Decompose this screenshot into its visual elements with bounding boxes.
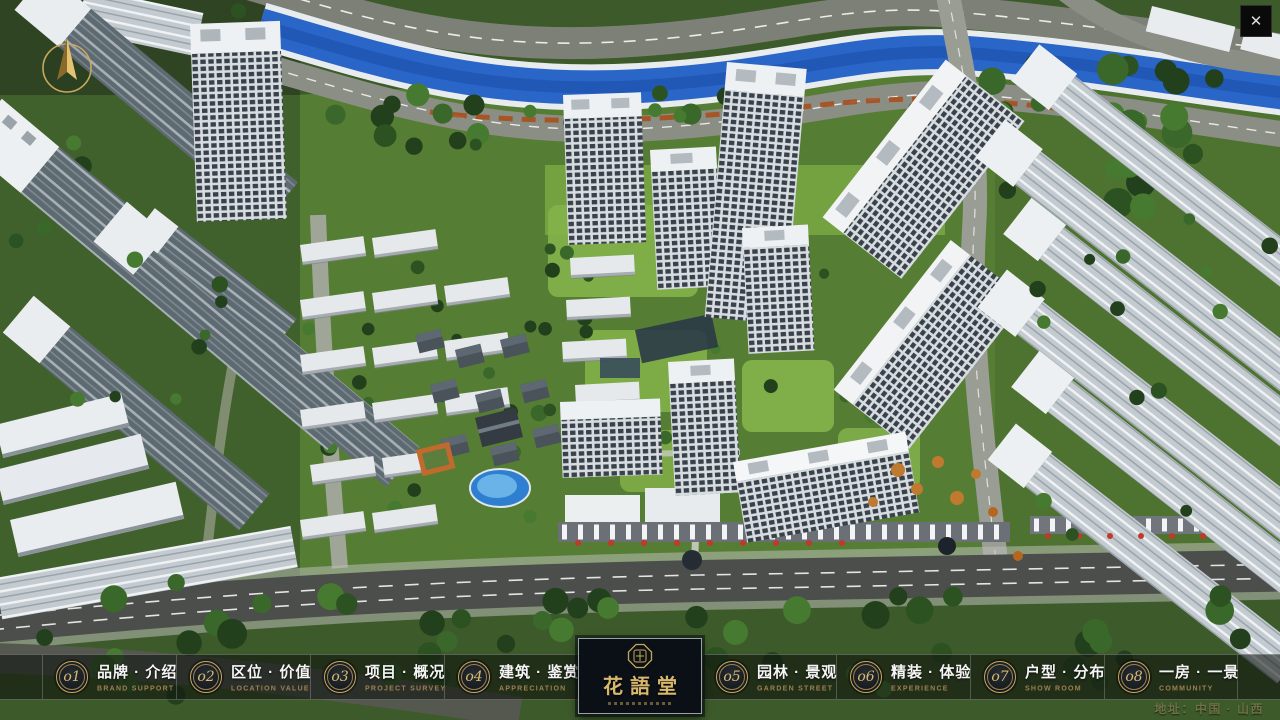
nav-item-unit-layouts[interactable]: o7 户型 · 分布 SHOW ROOM — [970, 655, 1104, 699]
nav-item-3-number: o3 — [331, 670, 348, 684]
project-logo-panel[interactable]: 花語堂 — [578, 638, 702, 714]
nav-item-location-value[interactable]: o2 区位 · 价值 LOCATION VALUE — [176, 655, 310, 699]
nav-item-7-label-en: SHOW ROOM — [1025, 684, 1087, 692]
nav-item-6-badge: o6 — [850, 661, 882, 693]
nav-item-6-number: o6 — [857, 670, 874, 684]
nav-item-4-label-zh: 建筑 · 鉴赏 — [499, 661, 578, 682]
sales-presentation-window: ✕ o1 品牌 · 介绍 BRAND SUPPORT o2 区位 · 价值 LO… — [0, 0, 1280, 720]
nav-item-project-survey[interactable]: o3 项目 · 概况 PROJECT SURVEY — [310, 655, 444, 699]
nav-item-1-label-en: BRAND SUPPORT — [97, 684, 159, 692]
nav-item-room-view[interactable]: o8 一房 · 一景 COMMUNITY — [1104, 655, 1238, 699]
nav-item-5-label-zh: 园林 · 景观 — [757, 661, 836, 682]
nav-item-5-badge: o5 — [716, 661, 748, 693]
nav-item-8-number: o8 — [1125, 670, 1142, 684]
project-logo-title: 花語堂 — [603, 670, 684, 699]
nav-item-8-badge: o8 — [1118, 661, 1150, 693]
nav-item-2-label-en: LOCATION VALUE — [231, 684, 293, 692]
nav-item-architecture[interactable]: o4 建筑 · 鉴赏 APPRECIATION — [444, 655, 578, 699]
nav-item-8-label-en: COMMUNITY — [1159, 684, 1220, 692]
nav-item-5-label-en: GARDEN STREET — [757, 684, 819, 692]
nav-item-2-badge: o2 — [190, 661, 222, 693]
close-button[interactable]: ✕ — [1240, 5, 1272, 37]
nav-item-2-number: o2 — [197, 670, 214, 684]
nav-item-2-label-zh: 区位 · 价值 — [231, 661, 310, 682]
nav-item-1-number: o1 — [63, 670, 80, 684]
nav-item-brand-intro[interactable]: o1 品牌 · 介绍 BRAND SUPPORT — [42, 655, 176, 699]
close-icon: ✕ — [1250, 12, 1263, 30]
nav-item-4-badge: o4 — [458, 661, 490, 693]
logo-subtitle-marks — [608, 702, 672, 705]
nav-item-6-label-zh: 精装 · 体验 — [891, 661, 970, 682]
nav-item-7-badge: o7 — [984, 661, 1016, 693]
nav-item-3-badge: o3 — [324, 661, 356, 693]
nav-item-7-label-zh: 户型 · 分布 — [1025, 661, 1104, 682]
nav-item-6-label-en: EXPERIENCE — [891, 684, 953, 692]
nav-item-finishing-experience[interactable]: o6 精装 · 体验 EXPERIENCE — [836, 655, 970, 699]
bottom-navigation-bar: o1 品牌 · 介绍 BRAND SUPPORT o2 区位 · 价值 LOCA… — [0, 654, 1280, 700]
compass-icon — [36, 34, 98, 100]
nav-item-3-label-en: PROJECT SURVEY — [365, 684, 427, 692]
nav-item-7-number: o7 — [991, 670, 1008, 684]
seal-icon — [627, 643, 653, 669]
nav-item-8-label-zh: 一房 · 一景 — [1159, 661, 1237, 682]
site-aerial-render — [0, 0, 1280, 720]
nav-item-1-label-zh: 品牌 · 介绍 — [97, 661, 176, 682]
nav-item-3-label-zh: 项目 · 概况 — [365, 661, 444, 682]
nav-item-1-badge: o1 — [56, 661, 88, 693]
address-text: 地址：中国 · 山西 — [1154, 700, 1264, 717]
nav-item-5-number: o5 — [723, 670, 740, 684]
nav-item-4-label-en: APPRECIATION — [499, 684, 561, 692]
nav-item-garden-landscape[interactable]: o5 园林 · 景观 GARDEN STREET — [702, 655, 836, 699]
nav-item-4-number: o4 — [465, 670, 482, 684]
